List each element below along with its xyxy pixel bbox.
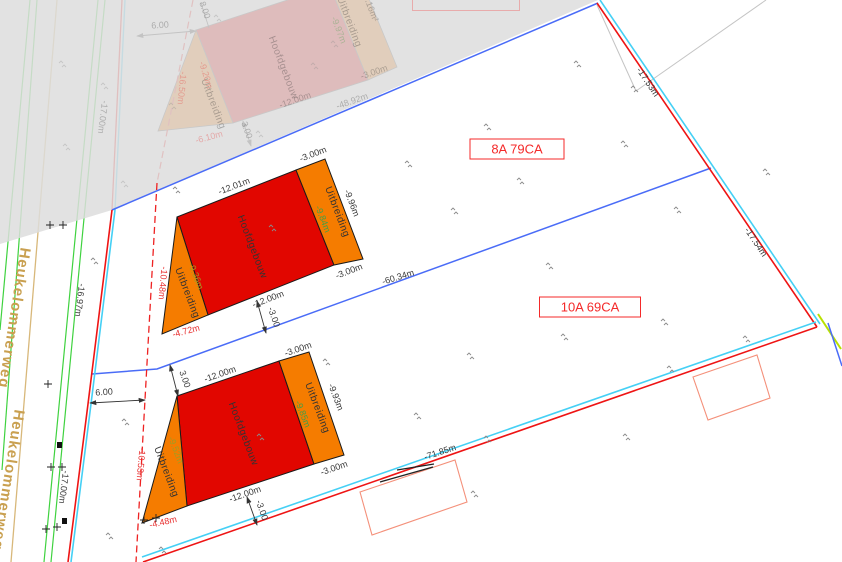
site-plan-drawing: [0, 0, 842, 562]
dim-faded-road-offset: 6.00: [151, 19, 169, 30]
dim-road-offset: 6.00: [95, 386, 113, 397]
plot-outline-right: [693, 355, 770, 420]
highlight-yellowgreen-line: [818, 314, 841, 349]
misc-black-marks: [380, 464, 434, 482]
parcel-label-lower: 10A 69CA: [539, 297, 641, 318]
boundary-right-red: [597, 3, 817, 327]
faded-parcel-label-box: [412, 0, 520, 11]
neighbour-parcel-outline: [597, 0, 766, 91]
plot-outline-bottom: [360, 460, 467, 535]
site-plan: Heukelommerweg Heukelommerweg 8A 79CA 10…: [0, 0, 842, 562]
parcel-label-upper: 8A 79CA: [470, 139, 565, 160]
plot-outlines: [360, 355, 770, 535]
